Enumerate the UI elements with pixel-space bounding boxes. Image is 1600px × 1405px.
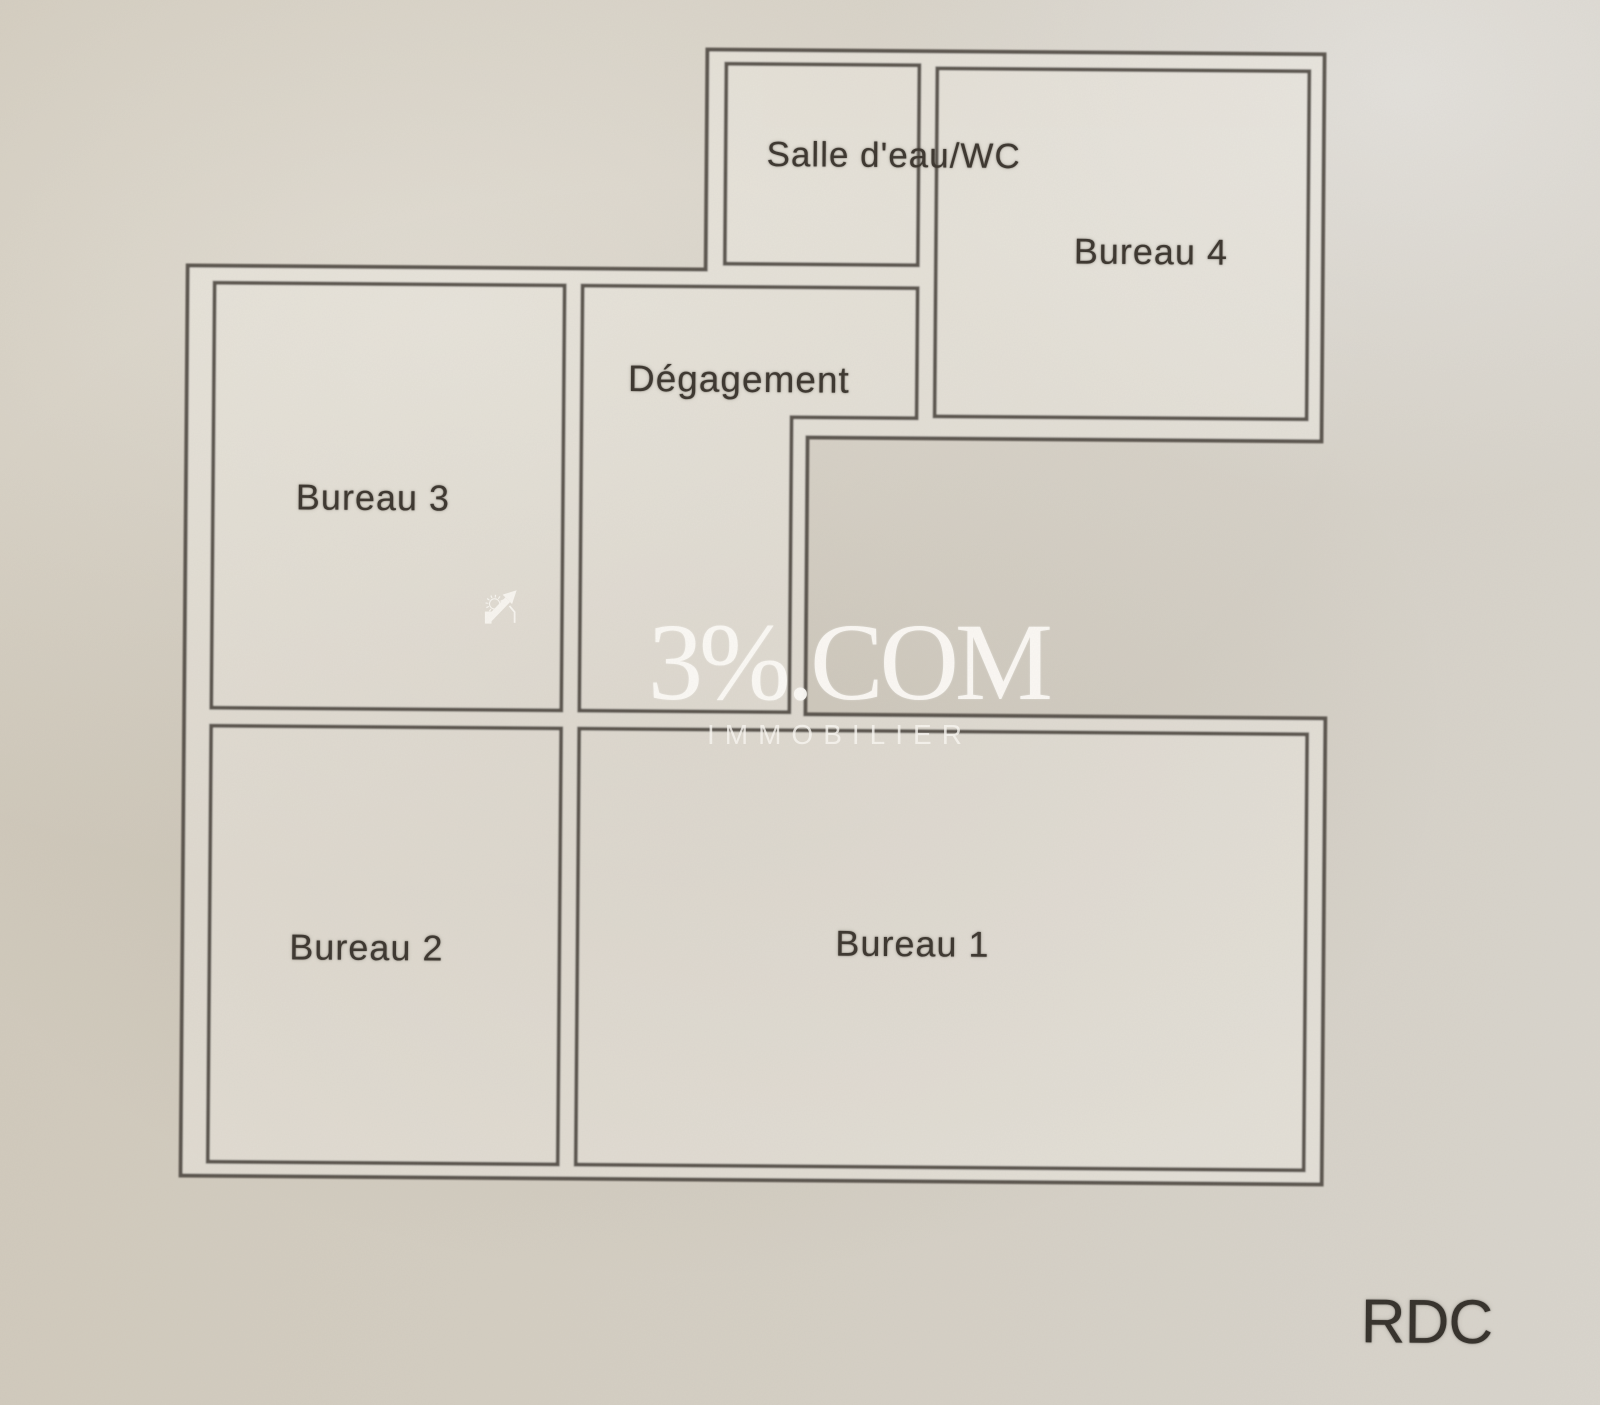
room-label-bureau-3: Bureau 3 [296,476,450,519]
floor-plan-walls [0,0,1600,1405]
scanned-floor-plan: Salle d'eau/WC Bureau 4 Dégagement Burea… [0,0,1600,1405]
room-label-bureau-4: Bureau 4 [1074,230,1228,273]
floor-level-label: RDC [1361,1286,1493,1358]
room-label-degagement: Dégagement [628,358,850,402]
building-outer-wall [181,46,1331,1185]
floor-plan: Salle d'eau/WC Bureau 4 Dégagement Burea… [0,0,1600,1405]
room-label-bureau-2: Bureau 2 [289,926,443,969]
room-label-bureau-1: Bureau 1 [835,923,989,966]
room-label-salle-eau-wc: Salle d'eau/WC [766,135,1020,177]
